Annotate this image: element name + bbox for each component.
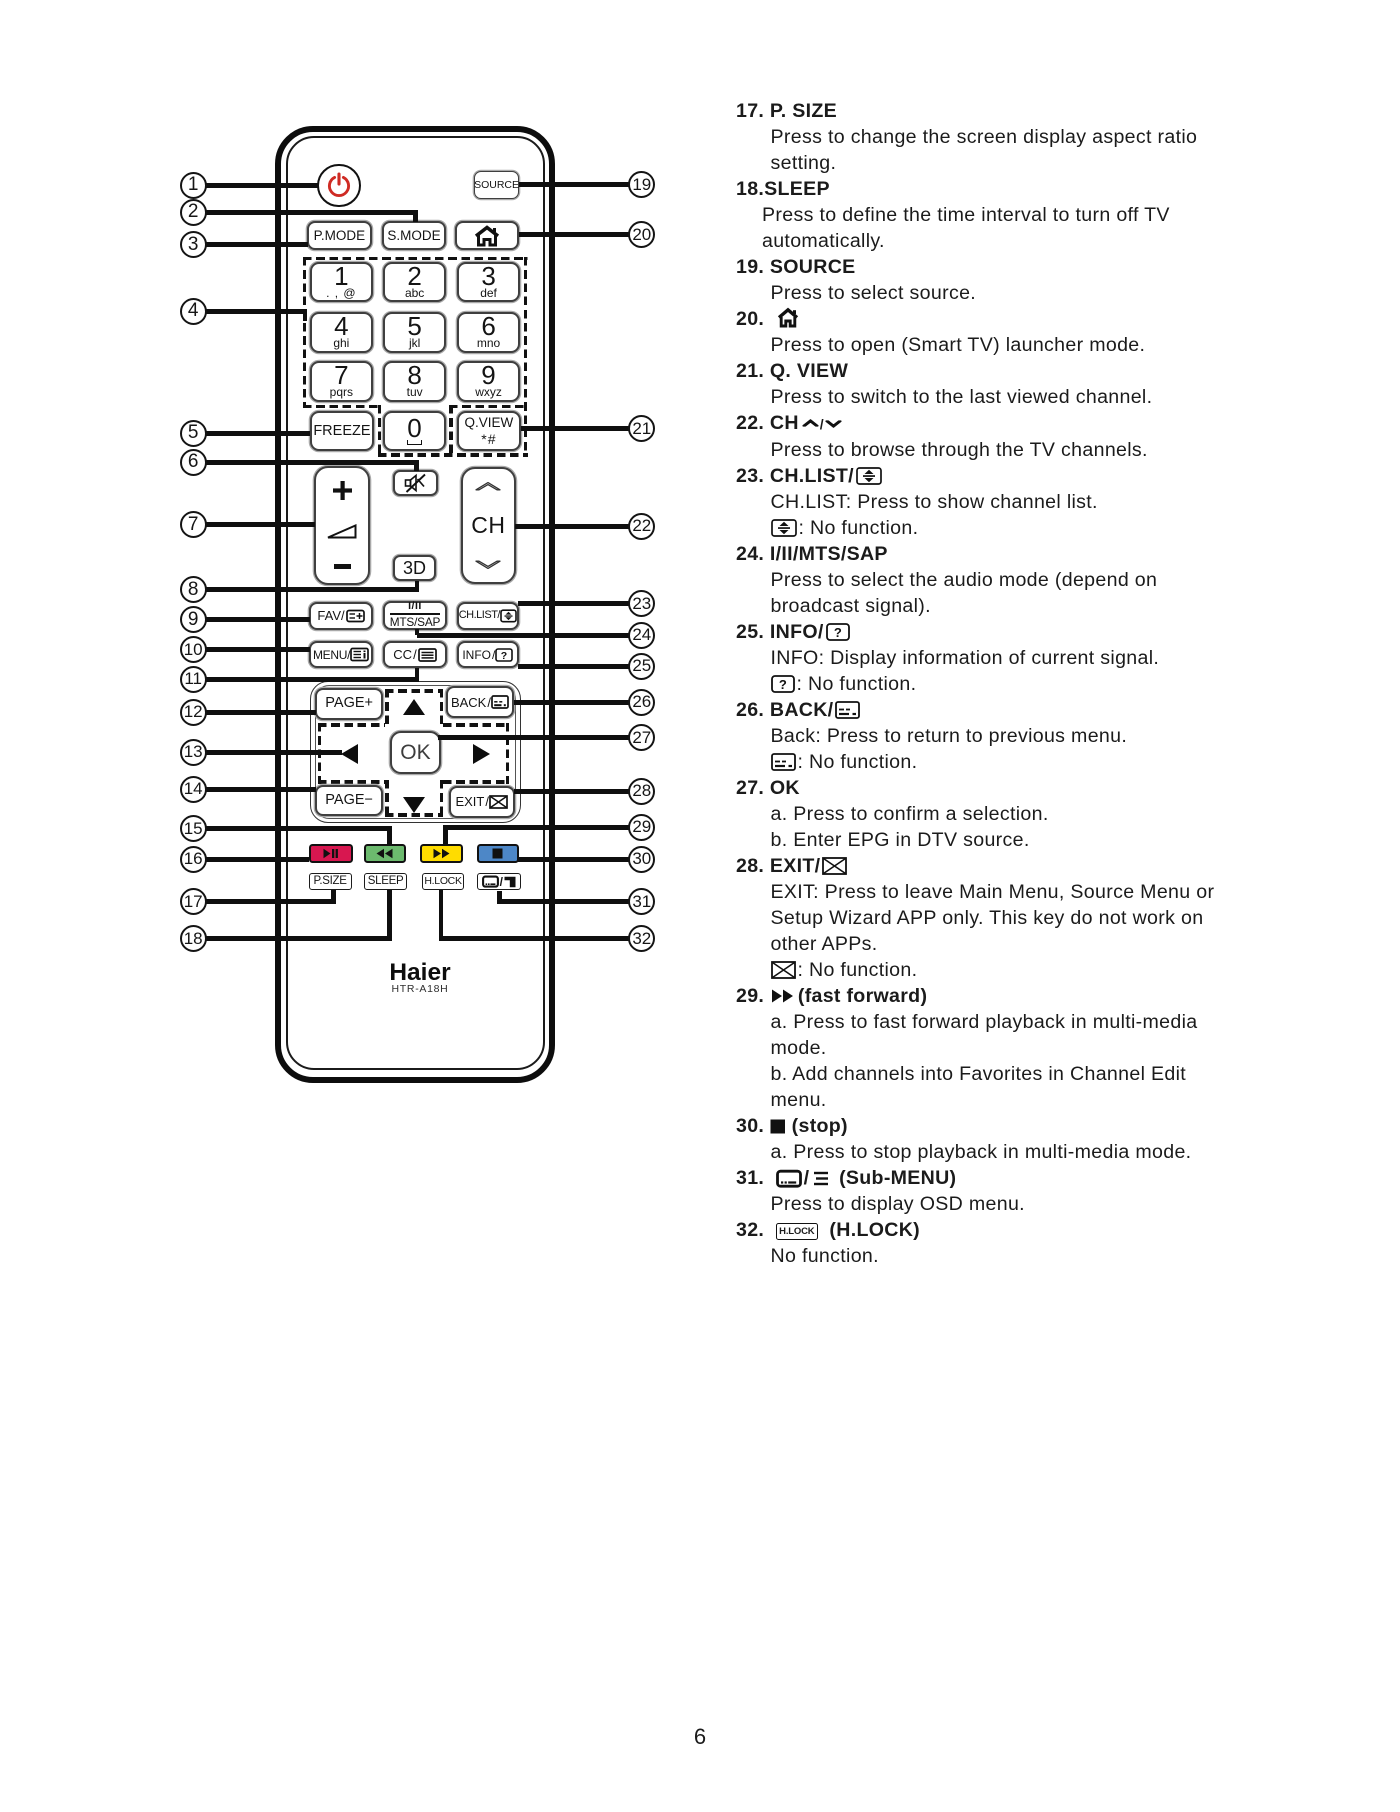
svg-text:?: ? (833, 625, 841, 640)
svg-text:?: ? (778, 677, 786, 692)
svg-text:?: ? (501, 650, 507, 662)
